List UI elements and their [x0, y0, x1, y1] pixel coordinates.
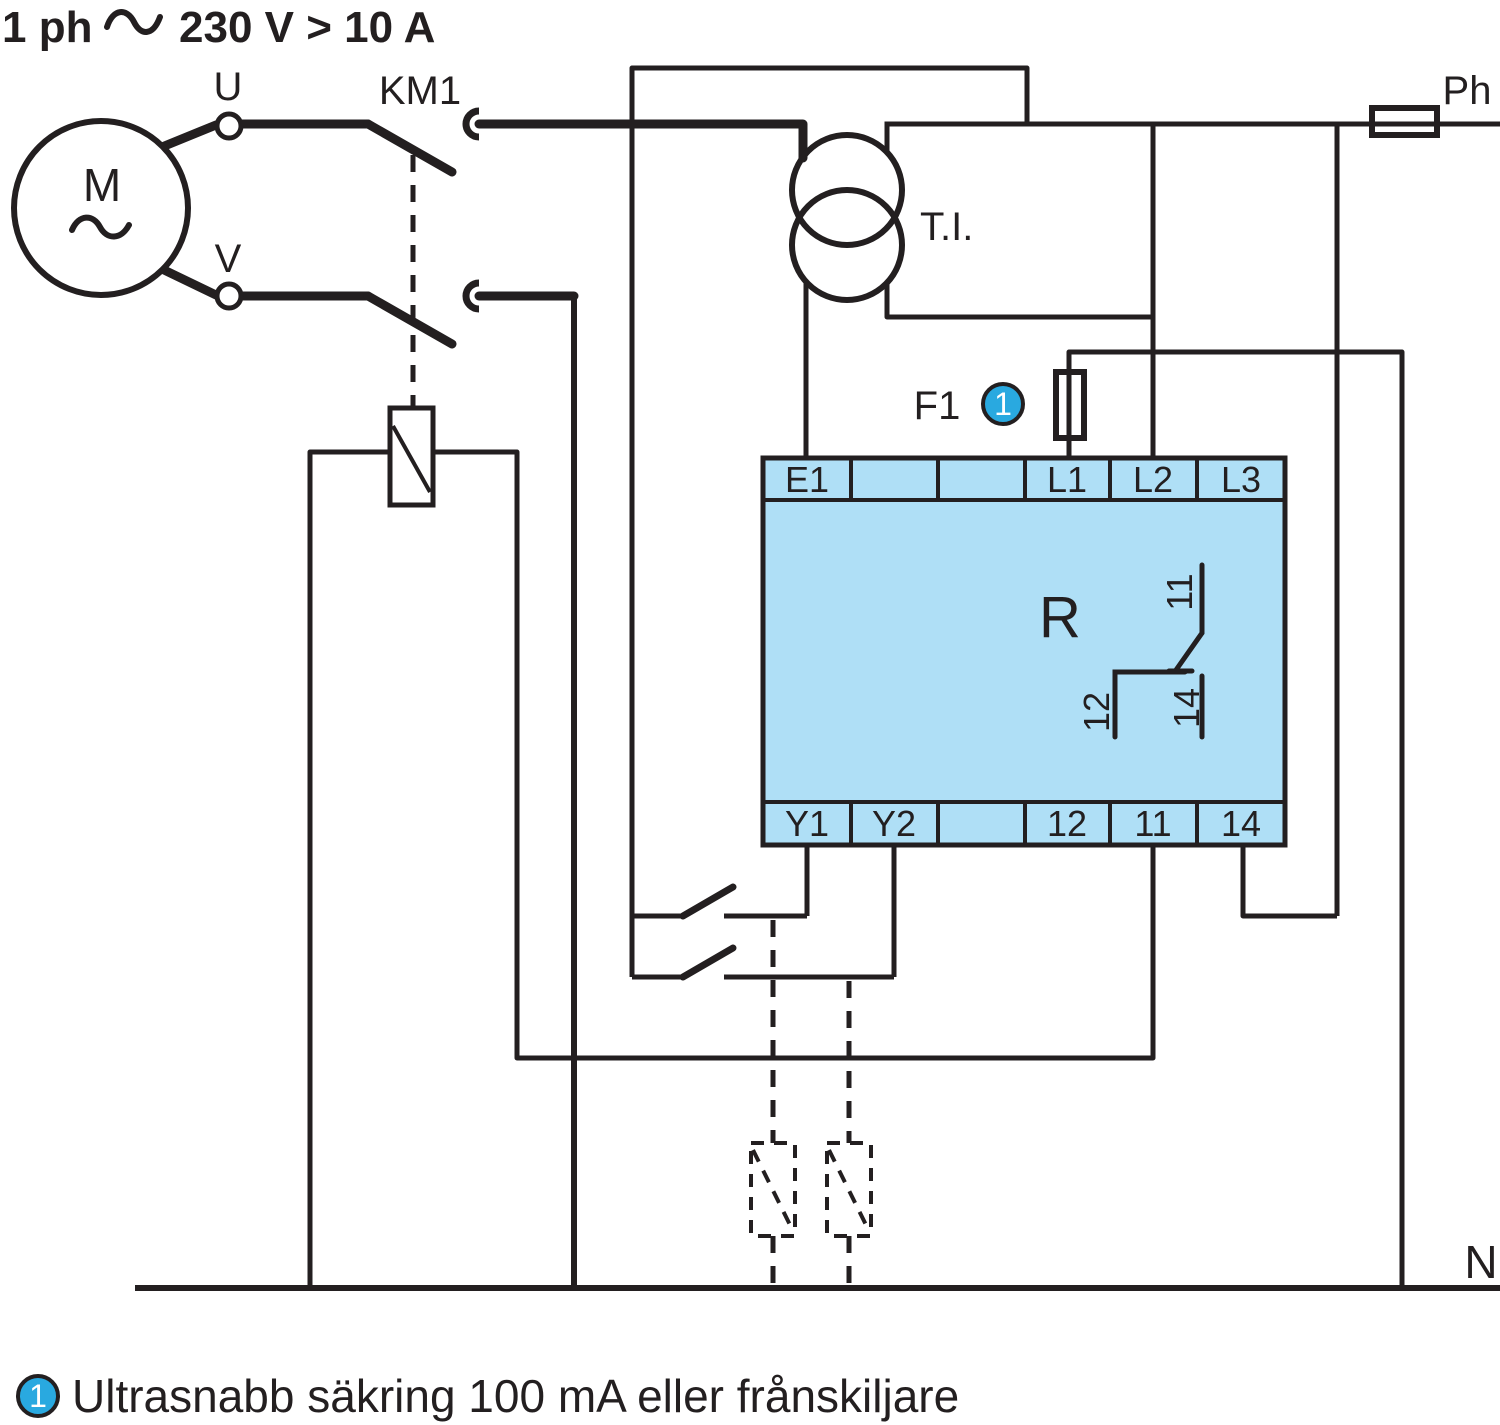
contactor-label: KM1 — [379, 69, 461, 113]
transformer-label: T.I. — [920, 205, 973, 249]
schematic-page: 1 ph 230 V > 10 A — [0, 0, 1500, 1425]
terminal-12: 12 — [1047, 803, 1087, 844]
note-badge-number: 1 — [994, 386, 1012, 422]
km1-blade-2 — [368, 296, 452, 344]
footnote-text: Ultrasnabb säkring 100 mA eller frånskil… — [72, 1370, 959, 1422]
terminal-l1: L1 — [1047, 459, 1087, 500]
relay-block: E1 L1 L2 L3 Y1 Y2 12 11 14 R 11 12 14 — [763, 458, 1285, 845]
terminal-u-label: U — [214, 65, 243, 109]
wire-toroid-secondary — [887, 283, 1153, 317]
power-wiring — [162, 124, 803, 344]
title-prefix: 1 ph — [2, 3, 92, 52]
terminal-l3: L3 — [1221, 459, 1261, 500]
aux-switches — [683, 887, 733, 977]
fuse-f1-label: F1 — [914, 384, 961, 428]
rail-phase-thick — [479, 124, 803, 158]
terminal-v-label: V — [215, 237, 242, 281]
motor-label: M — [83, 159, 121, 211]
terminal-v-circle — [217, 284, 241, 308]
motor-stub-v — [162, 269, 216, 295]
sine-wave-icon — [107, 12, 160, 32]
footnote: 1 Ultrasnabb säkring 100 mA eller frånsk… — [18, 1370, 959, 1422]
contact-label-14: 14 — [1166, 688, 1207, 728]
wire-coil-to-neutral — [310, 452, 390, 1288]
current-transformer-symbol: T.I. — [792, 135, 973, 300]
optional-disconnectors — [751, 1143, 871, 1236]
km1-coil — [390, 408, 433, 505]
footnote-badge-number: 1 — [29, 1378, 47, 1414]
contact-label-11: 11 — [1159, 573, 1200, 610]
wiring-diagram: 1 ph 230 V > 10 A — [0, 0, 1500, 1425]
motor-stub-u — [162, 125, 216, 147]
wire-14-link — [1243, 845, 1337, 916]
motor-symbol: M — [14, 121, 188, 295]
motor-terminals: U V — [214, 65, 243, 308]
aux-switch2-blade — [683, 948, 733, 977]
neutral-label: N — [1464, 1236, 1497, 1288]
terminal-y2: Y2 — [872, 803, 916, 844]
terminal-y1: Y1 — [785, 803, 829, 844]
aux-switch1-blade — [683, 887, 733, 916]
terminal-e1: E1 — [785, 459, 829, 500]
relay-body — [763, 458, 1285, 845]
km1-blade-1 — [368, 124, 452, 172]
contact-label-12: 12 — [1076, 692, 1117, 732]
relay-label: R — [1039, 585, 1081, 650]
title-suffix: 230 V > 10 A — [179, 3, 435, 52]
terminal-14: 14 — [1221, 803, 1261, 844]
km1-fixed-contacts — [466, 111, 479, 309]
terminal-u-circle — [217, 114, 241, 138]
terminal-l2: L2 — [1133, 459, 1173, 500]
fuse-f1: F1 1 — [914, 372, 1084, 438]
terminal-11: 11 — [1134, 803, 1171, 844]
phase-label: Ph — [1443, 69, 1492, 113]
diagram-title: 1 ph 230 V > 10 A — [2, 3, 435, 52]
